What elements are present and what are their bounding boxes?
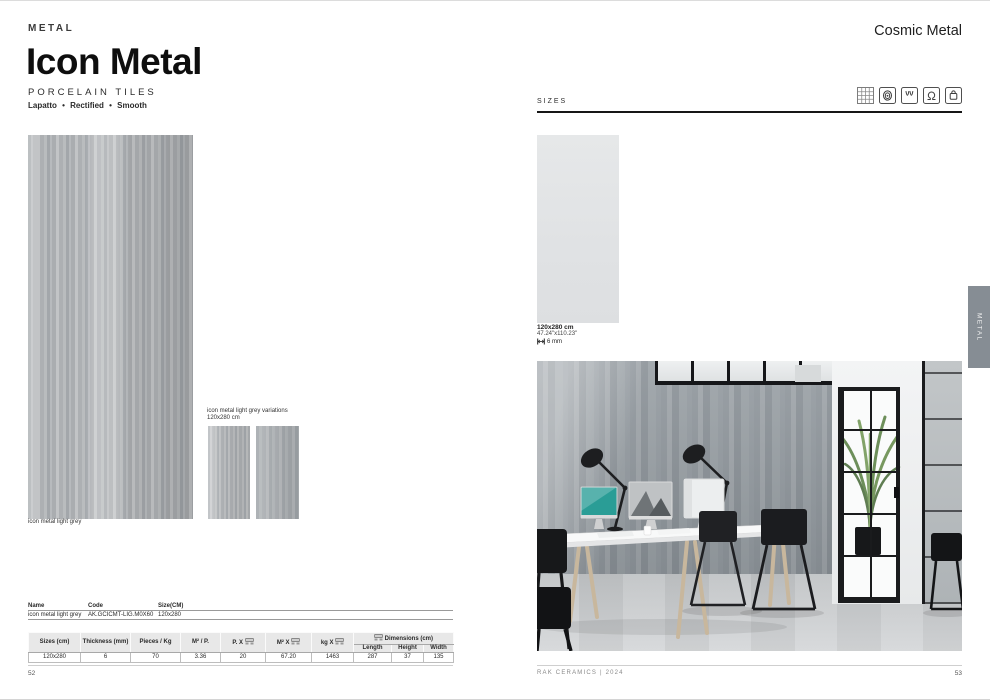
spec-header-kg-pallet-label: kg X [321,640,334,646]
spec-value-m2-pallet: 67.20 [266,652,312,662]
spec-header-m2-pallet-label: M² X [277,640,290,646]
pallet-icon [335,638,344,645]
thickness-value: 6 mm [547,339,562,345]
info-value-code: AK.GCICMT-LIG.M0X60 [88,612,158,618]
brand-footer: RAK CERAMICS | 2024 [537,670,624,676]
info-value-name: icon metal light grey [28,612,88,618]
room-photo [537,361,962,651]
spec-header-dimensions: Dimensions (cm) [354,633,454,645]
certification-icon-row [537,87,962,104]
bag-icon [945,87,962,104]
spec-value-row: 120x280 6 70 3.36 20 67.20 1463 287 37 1… [29,652,454,662]
pallet-icon [291,638,300,645]
frost-waves-icon [901,87,918,104]
swatch-inches-label: 47.24"x110.23" [537,331,577,337]
variation-swatch-2 [256,426,299,519]
catalog-spread: METAL Icon Metal PORCELAIN TILES Lapatto… [0,0,990,700]
spec-header-dimensions-label: Dimensions (cm) [385,636,433,642]
section-tab-metal: METAL [968,286,990,368]
variations-label-line2: 120x280 cm [207,415,288,422]
main-tile-image [28,135,193,519]
photo-furniture [537,361,962,651]
right-footer-rule [537,665,962,666]
left-page-number: 52 [28,670,35,677]
spec-header-m2-pallet: M² X [266,633,312,653]
variations-label: icon metal light grey variations 120x280… [207,408,288,422]
swatch-thickness-label: 6 mm [537,338,562,345]
spec-header-length: Length [354,644,392,652]
spec-header-width: Width [424,644,454,652]
info-table-header-row: Name Code Size(CM) [28,602,453,611]
spec-value-height: 37 [392,652,424,662]
category-label: METAL [28,23,74,34]
section-tab-label: METAL [976,313,983,342]
spec-header-thickness: Thickness (mm) [81,633,131,653]
right-page-number: 53 [952,670,962,677]
spec-header-m2p: M² / P. [181,633,221,653]
info-value-size: 120x280 [158,612,453,618]
spec-header-sizes: Sizes (cm) [29,633,81,653]
spec-value-sizes: 120x280 [29,652,81,662]
info-table-value-row: icon metal light grey AK.GCICMT-LIG.M0X6… [28,611,453,620]
spec-table: Sizes (cm) Thickness (mm) Pieces / Kg M²… [28,632,454,663]
pallet-icon [245,638,254,645]
page-title: Icon Metal [26,41,202,83]
spec-header-pieces: Pieces / Kg [131,633,181,653]
pallet-icon [374,634,383,641]
variations-label-line1: icon metal light grey variations [207,408,288,415]
finishes-label: Lapatto • Rectified • Smooth [28,101,147,110]
spec-value-width: 135 [424,652,454,662]
spec-header-p-pallet: P. X [221,633,266,653]
main-tile-caption: icon metal light grey [28,519,81,525]
variation-swatch-1 [208,426,250,519]
spec-header-kg-pallet: kg X [312,633,354,653]
spec-value-m2p: 3.36 [181,652,221,662]
spec-header-row: Sizes (cm) Thickness (mm) Pieces / Kg M²… [29,633,454,645]
omega-icon [923,87,940,104]
spec-value-length: 287 [354,652,392,662]
thickness-icon [537,338,545,345]
spec-value-thickness: 6 [81,652,131,662]
tile-grid-icon [857,87,874,104]
product-type-label: PORCELAIN TILES [28,87,157,98]
swatch-size-label: 120x280 cm [537,324,574,331]
left-footer-rule [28,665,453,666]
size-swatch-120x280 [537,135,619,323]
fingerprint-icon [879,87,896,104]
info-header-size: Size(CM) [158,603,453,609]
spec-value-kg-pallet: 1463 [312,652,354,662]
spec-value-p-pallet: 20 [221,652,266,662]
collection-title: Cosmic Metal [662,23,962,39]
product-info-table: Name Code Size(CM) icon metal light grey… [28,602,453,620]
spec-header-p-pallet-label: P. X [232,640,243,646]
spec-value-pieces: 70 [131,652,181,662]
info-header-name: Name [28,603,88,609]
sizes-rule [537,111,962,113]
spec-header-height: Height [392,644,424,652]
info-header-code: Code [88,603,158,609]
